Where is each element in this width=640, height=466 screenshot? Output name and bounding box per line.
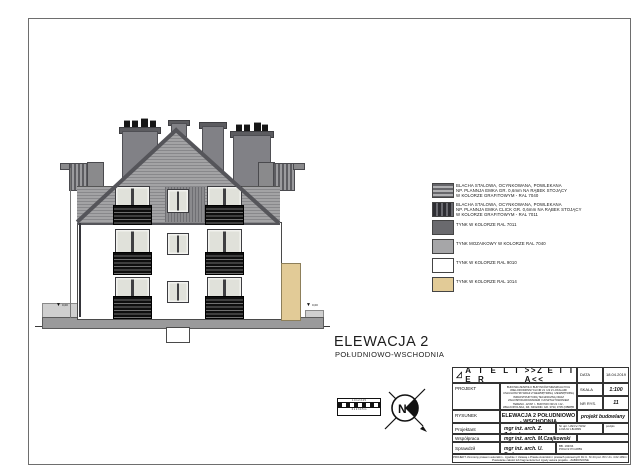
drawing-sheet: ▼ 0,00 ▼ 0,00 BLACHA STALOWA, OCYNKOWANA…	[0, 0, 640, 466]
title-block-header: A T E L I E R >>Z E T T A<<	[452, 367, 577, 383]
rysunek-title-cell: ELEWACJA 2 POŁUDNIOWO - WSCHODNIA ETAP I…	[500, 410, 577, 423]
window-attic-center	[167, 189, 189, 213]
studio-name-2: >>Z E T T A<<	[525, 367, 576, 383]
drawing-subtitle: POŁUDNIOWO-WSCHODNIA	[335, 350, 444, 359]
legend-label: BLACHA STALOWA, OCYNKOWANA, POWLEKANA NP…	[456, 202, 586, 217]
balcony-railing	[113, 205, 152, 225]
level-marker-icon: ▼	[56, 303, 61, 307]
legend-swatch-tynk-9010	[432, 258, 454, 273]
title-block: A T E L I E R >>Z E T T A<< DATA 18.04.2…	[452, 367, 629, 463]
studio-name: A T E L I E R	[465, 367, 521, 383]
legend-swatch-tynk-7011	[432, 220, 454, 235]
level-marker-label: 0,00	[312, 303, 318, 307]
legend-swatch-tynk-1014	[432, 277, 454, 292]
nr-rys-value-cell: 11	[603, 396, 629, 410]
tan-wall-strip	[281, 263, 301, 321]
nr-rys-label-cell: NR RYS.	[577, 396, 603, 410]
sprawdzil-name-cell: mgr inż. arch. U. Bednarz	[500, 442, 556, 454]
copyright-cell: PROJEKT chroniony prawem autorskim - zgo…	[452, 454, 629, 463]
window-mid-center	[167, 233, 189, 255]
balcony-railing	[205, 205, 244, 225]
skala-value-cell: 1:100	[603, 383, 629, 396]
projektant-label-cell: Projektant	[452, 423, 500, 434]
left-corner-line	[70, 168, 71, 318]
podpis-cell: podpis	[603, 423, 629, 434]
materials-legend: BLACHA STALOWA, OCYNKOWANA, POWLEKANA NP…	[430, 182, 590, 294]
window-ground-center	[167, 281, 189, 303]
downspout	[79, 223, 81, 317]
projektant-name-cell: mgr inż. arch. Z. Zabagło	[500, 423, 556, 434]
level-marker-label: 0,00	[62, 303, 68, 307]
projekt-label-cell: PROJEKT	[452, 383, 500, 410]
rysunek-label-cell: RYSUNEK	[452, 410, 500, 423]
level-marker-left: ▼ 0,00	[56, 303, 68, 307]
legend-label: TYNK MOZAIKOWY W KOLORZE RAL 7040	[456, 241, 586, 246]
wspolpraca-label-cell: Współpraca	[452, 434, 500, 442]
projekt-description-cell: BUDOWA ZESPOŁU BUDYNKÓW MIESZKALNYCH WIE…	[500, 383, 577, 410]
level-marker-right: ▼ 0,00	[306, 303, 318, 307]
sprawdzil-stamp-cell: BB. 193/94 POIA Nr PO-0859	[556, 442, 629, 454]
legend-swatch-tynk-7040	[432, 239, 454, 254]
legend-swatch-blacha-7011	[432, 202, 454, 217]
legend-swatch-blacha-7040	[432, 183, 454, 198]
atelier-zetta-logo-icon	[456, 370, 462, 380]
eave-line-right	[238, 186, 280, 187]
graphic-scale-bar: 1 0 1 2 3 4 5 0 1 2 3 4 5 m	[337, 398, 381, 416]
legend-label: TYNK W KOLORZE RAL 7011	[456, 222, 586, 227]
scale-numbers-bottom: 0 1 2 3 4 5 m	[338, 408, 380, 411]
projektant-stamp-cell: Nr upr. UAN-V-73/42 LOIA Nr LB-0839	[556, 423, 603, 434]
sprawdzil-label-cell: Sprawdził	[452, 442, 500, 454]
data-label-cell: DATA	[577, 367, 603, 383]
legend-label: TYNK W KOLORZE RAL 9010	[456, 260, 586, 265]
data-value-cell: 18.04.2019	[603, 367, 629, 383]
basement-window-well	[166, 327, 190, 343]
balcony-railing	[205, 296, 244, 319]
balcony-railing	[113, 252, 152, 275]
compass-letter-n: N	[398, 402, 407, 416]
wspolpraca-empty-cell	[577, 434, 629, 442]
north-arrow-compass: N	[380, 384, 430, 434]
balcony-railing	[113, 296, 152, 319]
legend-label: BLACHA STALOWA, OCYNKOWANA, POWLEKANA NP…	[456, 183, 586, 198]
wspolpraca-name-cell: mgr inż. arch. M.Czajkowski	[500, 434, 577, 442]
balcony-railing	[205, 252, 244, 275]
doc-type-cell: projekt budowlany	[577, 410, 629, 423]
right-gutter-end	[293, 163, 305, 170]
legend-label: TYNK W KOLORZE RAL 1014	[456, 279, 586, 284]
drawing-title: ELEWACJA 2	[334, 334, 429, 350]
skala-label-cell: SKALA	[577, 383, 603, 396]
level-marker-icon: ▼	[306, 303, 311, 307]
rysunek-line1: ELEWACJA 2 POŁUDNIOWO - WSCHODNIA	[501, 411, 576, 423]
